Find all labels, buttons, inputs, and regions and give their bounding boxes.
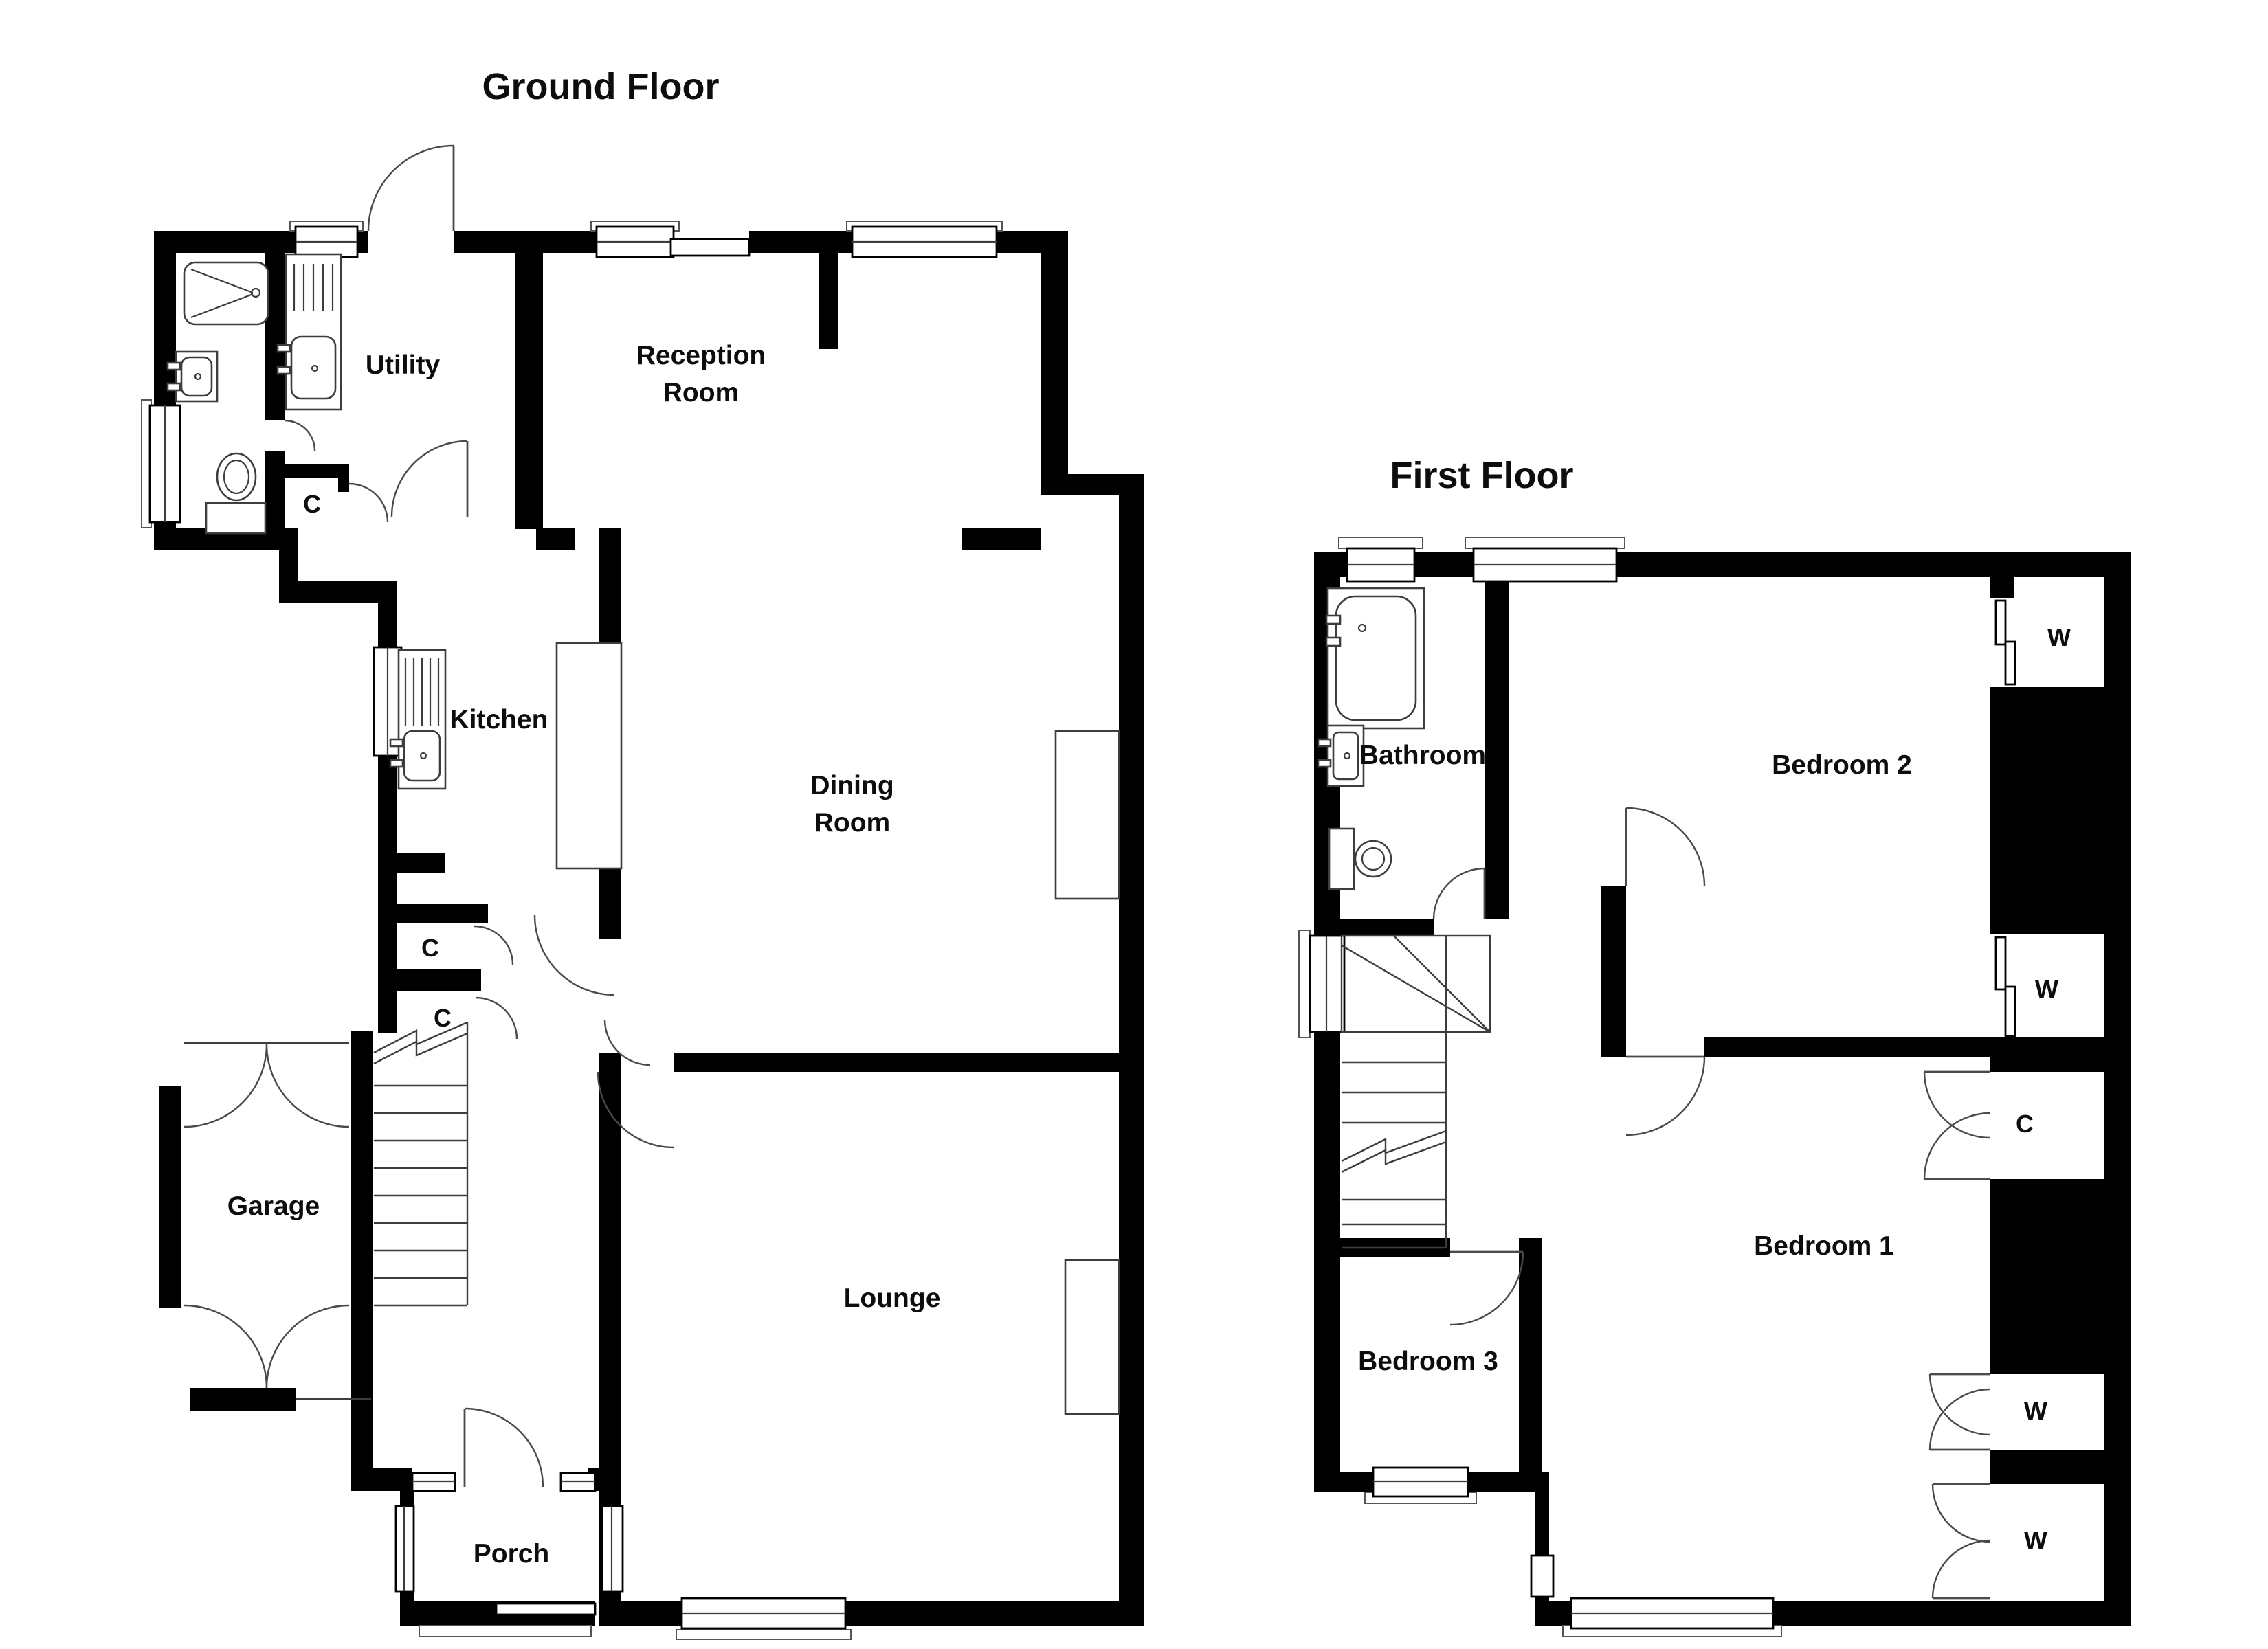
garage-front-doors xyxy=(184,1305,371,1399)
porch-label: Porch xyxy=(474,1539,550,1569)
wardrobe-label-bed2-bottom: W xyxy=(2035,975,2058,1003)
closet-label-annex: C xyxy=(303,490,321,518)
reception-label-line1: Reception xyxy=(636,341,766,370)
wc-door xyxy=(285,420,315,451)
staircase-first xyxy=(1342,936,1490,1248)
closet-label-bed1: C xyxy=(2016,1110,2034,1138)
first-floor-fixtures xyxy=(1318,588,1490,1248)
bedroom2-door xyxy=(1626,808,1704,886)
toilet-icon xyxy=(206,453,265,533)
bathtub-icon xyxy=(1326,588,1424,728)
first-floor-walls xyxy=(1314,552,2131,1626)
dining-chimney-breast xyxy=(1056,731,1119,899)
bedroom3-door xyxy=(1450,1252,1523,1325)
closet-label-2: C xyxy=(434,1004,452,1032)
lounge-chimney-breast xyxy=(1065,1260,1119,1414)
wardrobe-label-bed2-top: W xyxy=(2047,623,2071,651)
dining-label-line1: Dining xyxy=(810,771,893,800)
ground-floor-fixtures xyxy=(168,254,1119,1414)
lounge-label: Lounge xyxy=(844,1283,941,1313)
floorplan-svg: Ground Floor xyxy=(0,0,2268,1649)
wardrobe1-doors-bedroom1 xyxy=(1930,1374,1990,1450)
bathroom-toilet-icon xyxy=(1329,829,1391,889)
closet-label-1: C xyxy=(421,934,439,962)
closet2-door xyxy=(476,998,517,1039)
ground-floor-windows xyxy=(142,221,1002,1639)
bedroom1-door xyxy=(1626,1057,1704,1135)
dining-label-line2: Room xyxy=(814,808,891,838)
wardrobe-label-bed1-top: W xyxy=(2024,1397,2047,1425)
bathroom-door xyxy=(1434,868,1485,919)
utility-label: Utility xyxy=(366,350,441,380)
porch-door xyxy=(465,1409,543,1487)
wardrobe2-doors-bedroom1 xyxy=(1933,1484,1990,1598)
garage-label: Garage xyxy=(227,1191,320,1221)
first-floor-plan: First Floor xyxy=(1299,455,2131,1637)
closet-doors-bedroom1 xyxy=(1924,1072,1990,1179)
bathroom-label: Bathroom xyxy=(1359,741,1486,770)
utility-closet-door xyxy=(349,484,388,522)
kitchen-unit xyxy=(557,643,621,868)
utility-sink-icon xyxy=(278,254,341,410)
bedroom3-label: Bedroom 3 xyxy=(1358,1347,1498,1376)
reception-label-line2: Room xyxy=(663,378,740,407)
first-floor-title: First Floor xyxy=(1390,455,1574,496)
garage-rear-doors xyxy=(184,1043,349,1127)
ground-floor-walls xyxy=(154,231,1144,1626)
kitchen-sink-icon xyxy=(390,650,445,789)
hall-door xyxy=(392,441,467,517)
shower-tray-icon xyxy=(184,262,268,324)
bedroom1-label: Bedroom 1 xyxy=(1754,1231,1894,1261)
bedroom2-label: Bedroom 2 xyxy=(1772,750,1912,780)
staircase-ground xyxy=(374,1022,467,1305)
wc-basin-icon xyxy=(168,352,217,401)
kitchen-label: Kitchen xyxy=(449,705,548,734)
utility-entrance-door xyxy=(368,146,454,231)
wardrobe-label-bed1-bottom: W xyxy=(2024,1526,2047,1554)
ground-floor-title: Ground Floor xyxy=(482,66,720,107)
floorplan-canvas: Ground Floor xyxy=(0,0,2268,1649)
ground-floor-plan: Ground Floor xyxy=(142,66,1144,1639)
closet1-door xyxy=(474,926,513,965)
